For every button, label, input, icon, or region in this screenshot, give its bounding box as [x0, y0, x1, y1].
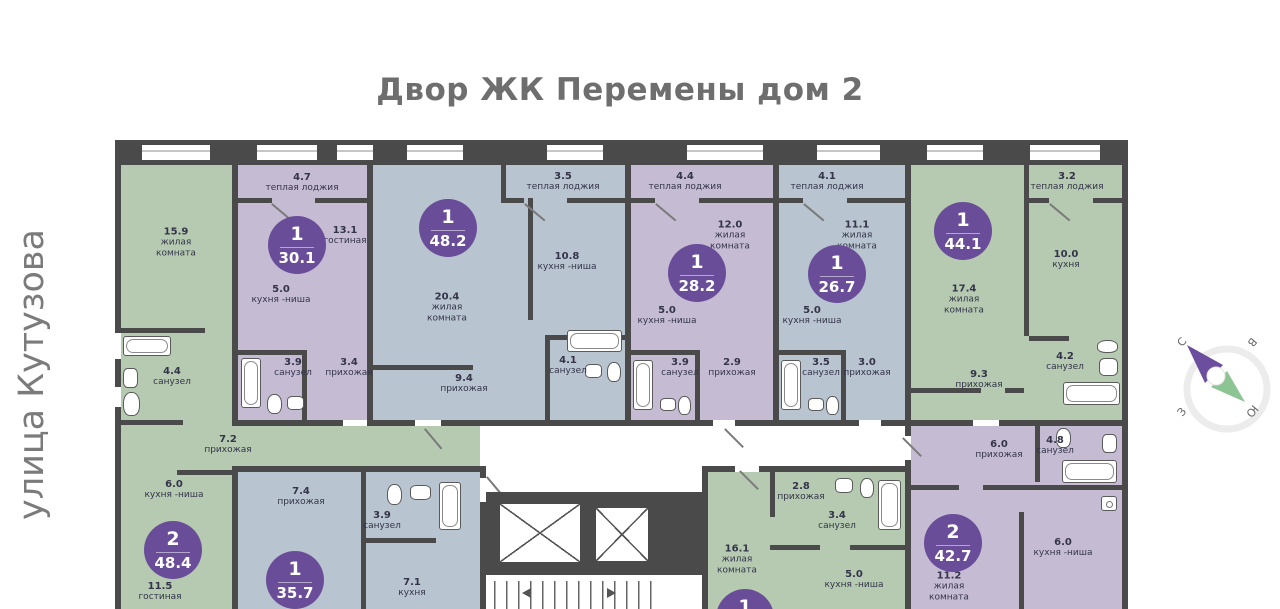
floorplan-page: Двор ЖК Перемены дом 2 улица Кутузова — [0, 0, 1280, 609]
stairs-arrow-icon — [607, 588, 621, 598]
compass: С В З Ю — [1163, 323, 1273, 433]
room-label: 20.4жилая комната — [415, 292, 479, 325]
sink-icon — [1099, 358, 1118, 376]
wall — [779, 198, 803, 203]
door-opening — [343, 420, 367, 426]
door-opening — [713, 420, 735, 426]
room-label: 5.0кухня -ниша — [822, 569, 886, 591]
bathtub-icon — [1062, 460, 1117, 483]
window — [257, 145, 317, 160]
room-label: 7.1кухня — [380, 577, 444, 599]
room-label: 10.0кухня — [1034, 249, 1098, 271]
apartment-area: 48.4 — [144, 556, 202, 571]
wall — [121, 420, 183, 425]
room-label: 6.0прихожая — [967, 439, 1031, 461]
page-title: Двор ЖК Перемены дом 2 — [0, 72, 1240, 108]
wall — [506, 198, 524, 203]
wall — [238, 350, 302, 355]
toilet-icon — [607, 362, 621, 382]
sink-icon — [287, 396, 304, 410]
wall — [770, 545, 820, 550]
wall — [631, 350, 695, 355]
room-label: 7.4прихожая — [269, 486, 333, 508]
wall — [631, 198, 655, 203]
room-label: 4.7теплая лоджия — [250, 172, 354, 194]
door-opening — [859, 420, 881, 426]
apartment-badge-44-1[interactable]: 144.1 — [934, 202, 992, 260]
apartment-badge-48-4[interactable]: 248.4 — [144, 521, 202, 579]
room-label: 3.9санузел — [261, 357, 325, 379]
wall — [911, 485, 959, 490]
apartment-area: 30.1 — [268, 251, 326, 266]
sink-icon — [1102, 434, 1117, 453]
door-opening — [973, 420, 999, 426]
room-label: 5.0кухня -ниша — [780, 305, 844, 327]
room-label: 9.4прихожая — [432, 373, 496, 395]
toilet-icon — [678, 396, 691, 415]
floor-plan: 15.9жилая комната 4.4санузел 7.2прихожая… — [115, 140, 1128, 609]
apartment-badge-26-7[interactable]: 126.7 — [808, 245, 866, 303]
compass-hub — [1207, 367, 1225, 385]
wall — [1093, 198, 1122, 203]
toilet-icon — [267, 394, 282, 414]
room-label: 4.1теплая лоджия — [775, 171, 879, 193]
window — [687, 145, 763, 160]
window — [817, 145, 880, 160]
room-label: 3.4санузел — [805, 510, 869, 532]
door-opening — [415, 420, 441, 426]
apartment-badge-48-2[interactable]: 148.2 — [419, 199, 477, 257]
toilet-icon — [123, 392, 140, 416]
room-label: 2.8прихожая — [769, 481, 833, 503]
wall — [238, 198, 272, 203]
room-label: 3.2теплая лоджия — [1015, 171, 1119, 193]
room-label: 11.2жилая комната — [917, 571, 981, 604]
wall — [177, 470, 232, 475]
apartment-badge-35-7[interactable]: 135.7 — [266, 551, 324, 609]
window — [337, 145, 373, 160]
stairs-arrow-icon — [517, 588, 531, 598]
wall — [1019, 512, 1024, 609]
bathtub-icon — [1063, 382, 1120, 405]
toilet-icon — [826, 396, 839, 415]
bathtub-icon — [123, 336, 171, 356]
washer-icon — [1101, 496, 1117, 511]
window — [142, 145, 210, 160]
bathtub-icon — [878, 480, 901, 530]
bathtub-icon — [439, 482, 461, 530]
room-label: 2.9прихожая — [700, 357, 764, 379]
room-label: 7.2прихожая — [196, 434, 260, 456]
room-label: 4.4санузел — [140, 366, 204, 388]
room-label: 6.0кухня -ниша — [142, 479, 206, 501]
sink-icon — [808, 398, 824, 411]
wall — [1029, 198, 1049, 203]
toilet-icon — [1097, 340, 1118, 353]
wall — [528, 198, 533, 320]
room-label: 17.4жилая комната — [932, 284, 996, 317]
window — [547, 145, 603, 160]
sink-icon — [835, 478, 853, 493]
apartment-badge-42-7[interactable]: 242.7 — [924, 514, 982, 572]
room-label: 10.8кухня -ниша — [535, 251, 599, 273]
sink-icon — [123, 368, 138, 388]
sink-icon — [410, 485, 431, 500]
wall — [983, 485, 1122, 490]
bathtub-icon — [241, 358, 261, 408]
apartment-area: 28.2 — [668, 279, 726, 294]
room-label: 6.0кухня -ниша — [1031, 537, 1095, 559]
room-label: 4.8санузел — [1023, 435, 1087, 457]
apartment-area: 48.2 — [419, 234, 477, 249]
room-label: 9.3прихожая — [947, 369, 1011, 391]
apartment-region-48-4-hall[interactable] — [232, 426, 480, 466]
wall — [699, 198, 773, 203]
wall — [847, 198, 905, 203]
room-label: 4.4теплая лоджия — [633, 171, 737, 193]
apartment-area: 44.1 — [934, 237, 992, 252]
toilet-icon — [860, 478, 874, 498]
window — [927, 145, 983, 160]
apartment-area: 42.7 — [924, 549, 982, 564]
wall — [366, 538, 436, 543]
wall — [545, 335, 550, 420]
apartment-region-48-2[interactable] — [373, 165, 625, 420]
apartment-area: 35.7 — [266, 586, 324, 601]
wall — [1029, 336, 1069, 341]
wall — [567, 198, 625, 203]
room-label: 5.0кухня -ниша — [249, 284, 313, 306]
wall — [315, 198, 367, 203]
compass-west-label: З — [1175, 405, 1189, 419]
elevator-shaft — [498, 502, 582, 564]
room-label: 15.9жилая комната — [144, 227, 208, 260]
apartment-badge-30-1[interactable]: 130.1 — [268, 216, 326, 274]
wall — [850, 545, 905, 550]
room-label: 4.2санузел — [1033, 351, 1097, 373]
wall — [779, 350, 841, 355]
apartment-badge-28-2[interactable]: 128.2 — [668, 244, 726, 302]
elevator-shaft — [594, 506, 650, 563]
wall — [373, 365, 473, 370]
window — [1030, 145, 1100, 160]
room-label: 11.5гостиная — [128, 581, 192, 603]
window — [407, 145, 463, 160]
bathtub-icon — [567, 330, 622, 352]
compass-east-label: В — [1245, 335, 1260, 349]
room-label: 3.0прихожая — [835, 357, 899, 379]
apartment-area: 26.7 — [808, 280, 866, 295]
toilet-icon — [387, 484, 402, 505]
room-label: 5.0кухня -ниша — [635, 305, 699, 327]
street-label: улица Кутузова — [12, 180, 52, 570]
wall — [121, 328, 205, 333]
room-label: 16.1жилая комната — [705, 544, 769, 577]
sink-icon — [660, 398, 676, 411]
room-label: 3.4прихожая — [317, 357, 381, 379]
corridor — [480, 426, 905, 466]
room-label: 3.5теплая лоджия — [511, 171, 615, 193]
room-label: 4.1санузел — [536, 355, 600, 377]
room-label: 3.9санузел — [350, 510, 414, 532]
compass-north-label: С — [1175, 335, 1190, 349]
